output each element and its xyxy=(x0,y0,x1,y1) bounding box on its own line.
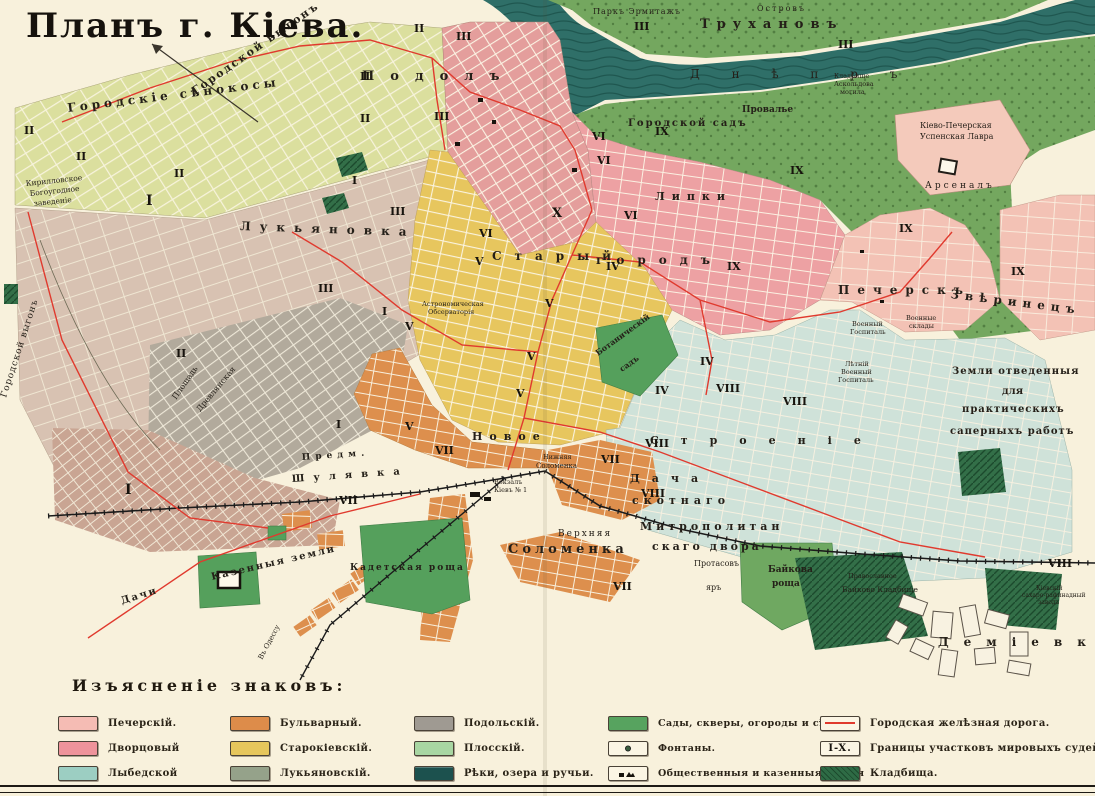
district-numeral: VI xyxy=(623,209,638,222)
legend-swatch-podolsky xyxy=(414,716,454,731)
district-numeral: II xyxy=(360,70,370,83)
district-numeral: VI xyxy=(591,130,606,143)
map-label: Лѣтній xyxy=(845,360,869,368)
map-label: Байково Кладбище xyxy=(842,585,918,594)
district-numeral: I xyxy=(352,174,357,187)
legend-label: Дворцовый xyxy=(108,743,180,754)
red-rail-line-icon xyxy=(825,722,855,724)
map-label: саперныхъ работъ xyxy=(950,426,1074,437)
map-label: Д н ѣ п р ъ xyxy=(690,67,911,81)
legend-label: Границы участковъ мировыхъ судей. xyxy=(870,743,1095,754)
legend-label: Рѣки, озера и ручьи. xyxy=(464,768,594,779)
legend-swatch-buildings-icon xyxy=(608,766,648,781)
map-label: Строеніе xyxy=(650,434,883,447)
district-numeral: IV xyxy=(700,355,714,368)
legend-item: Кладбища. xyxy=(820,764,1095,782)
district-numeral: VII xyxy=(338,494,358,507)
lavra-building xyxy=(939,159,957,175)
page-title: Планъ г. Кіева. xyxy=(26,6,364,46)
map-label: для xyxy=(1002,386,1024,397)
legend-item: Рѣки, озера и ручьи. xyxy=(414,764,594,782)
map-label: Кладбище xyxy=(834,72,869,80)
map-label: Кіевъ № 1 xyxy=(494,486,527,494)
map-label: склады xyxy=(909,322,934,330)
district-numeral: II xyxy=(76,150,86,163)
map-label: роща xyxy=(772,579,800,589)
map-label: Кіевскій xyxy=(1036,585,1063,592)
legend-swatch-rivers xyxy=(414,766,454,781)
district-numeral: VII xyxy=(600,453,620,466)
legend-column-1: Печерскій. Дворцовый Лыбедской xyxy=(58,714,180,789)
map-label: Земли отведенныя xyxy=(952,366,1079,377)
legend-item: Дворцовый xyxy=(58,739,180,757)
map-label: Военный xyxy=(841,368,872,376)
map-label: яръ xyxy=(706,583,721,592)
district-numeral: X xyxy=(552,206,563,221)
district-numeral: VI xyxy=(478,227,493,240)
railway-station-building xyxy=(470,492,480,497)
legend-column-5: Городская желѣзная дорога. I-X. Границы … xyxy=(820,714,1095,789)
map-label: Нижняя xyxy=(543,453,572,461)
district-numeral: I xyxy=(146,193,153,209)
public-buildings-icon xyxy=(617,769,639,778)
district-numeral: V xyxy=(404,420,414,433)
legend-item: Печерскій. xyxy=(58,714,180,732)
legend-swatch-cemetery xyxy=(820,766,860,781)
district-numeral: II xyxy=(24,124,34,137)
map-label: Протасовъ xyxy=(694,559,739,568)
map-label: Митрополитан xyxy=(640,520,783,533)
district-numeral: I xyxy=(125,482,132,498)
map-label: практическихъ xyxy=(962,404,1065,415)
legend-swatch-lybedskoy xyxy=(58,766,98,781)
district-numeral: VIII xyxy=(1047,557,1072,570)
map-label: Арсеналъ xyxy=(925,181,995,191)
district-numeral: II xyxy=(176,347,186,360)
map-label: Вокзалъ xyxy=(494,478,522,486)
district-numeral: III xyxy=(434,110,449,123)
map-label: Городской садъ xyxy=(628,118,748,129)
map-label: Аскольдова xyxy=(834,80,874,88)
legend-swatch-starokievsky xyxy=(230,741,270,756)
legend-label: Лукьяновскій. xyxy=(280,768,371,779)
map-label: скаго двора xyxy=(652,540,762,553)
legend-label: Подольскій. xyxy=(464,718,540,729)
legend-item: Подольскій. xyxy=(414,714,594,732)
legend-swatch-districts: I-X. xyxy=(820,741,860,756)
district-numeral: V xyxy=(526,350,536,363)
district-numeral: VII xyxy=(434,444,454,457)
legend-label: Городская желѣзная дорога. xyxy=(870,718,1050,729)
district-numeral: IX xyxy=(655,125,669,138)
legend-label: Печерскій. xyxy=(108,718,177,729)
district-numeral: VIII xyxy=(782,395,807,408)
district-numeral: IX xyxy=(727,260,741,273)
district-numeral: VII xyxy=(612,580,632,593)
map-label: Новое xyxy=(472,430,547,443)
map-label: Кіево-Печерская xyxy=(920,121,992,130)
map-label: Военные xyxy=(906,314,936,322)
district-numeral: III xyxy=(456,30,471,43)
legend-swatch-fountain-icon xyxy=(608,741,648,756)
legend-swatch-dvortsovy xyxy=(58,741,98,756)
legend-swatch-railline xyxy=(820,716,860,731)
map-label: Успенская Лавра xyxy=(920,132,994,141)
paper-fold-line xyxy=(543,0,547,796)
map-label: Госпиталь xyxy=(838,376,874,384)
legend-label: Бульварный. xyxy=(280,718,362,729)
map-label: могила xyxy=(840,88,865,96)
legend-label: Фонтаны. xyxy=(658,743,715,754)
legend-heading: Изъясненіе знаковъ: xyxy=(72,676,346,695)
legend-column-3: Подольскій. Плосскій. Рѣки, озера и ручь… xyxy=(414,714,594,789)
map-label: Госпиталь xyxy=(850,328,886,336)
district-numeral: IX xyxy=(790,164,804,177)
map-label: Православное xyxy=(848,572,897,580)
map-label: Паркъ Эрмитажъ xyxy=(593,7,681,16)
map-label: Верхняя xyxy=(558,529,612,539)
map-bottom-border xyxy=(0,785,1095,793)
district-numeral: IV xyxy=(606,260,620,273)
legend-item: Плосскій. xyxy=(414,739,594,757)
district-numeral: III xyxy=(390,205,405,218)
legend-swatch-gardens xyxy=(608,716,648,731)
legend-label: Старокіевскій. xyxy=(280,743,372,754)
legend-column-2: Бульварный. Старокіевскій. Лукьяновскій. xyxy=(230,714,372,789)
district-numeral: III xyxy=(318,282,333,295)
map-label: Байкова xyxy=(768,564,813,575)
district-numeral: V xyxy=(474,255,484,268)
district-numeral: I xyxy=(336,418,341,431)
legend-label: Плосскій. xyxy=(464,743,525,754)
district-numeral: VIII xyxy=(644,437,669,450)
map-label: сахаро-рафинадный xyxy=(1022,592,1086,599)
map-label: Подолъ xyxy=(362,69,515,84)
legend-item: Лукьяновскій. xyxy=(230,764,372,782)
map-page: { "title": "Планъ г. Кіева.", "legend": … xyxy=(0,0,1095,796)
legend-swatch-pechersky xyxy=(58,716,98,731)
fountain-icon xyxy=(622,744,634,753)
legend-item: I-X. Границы участковъ мировыхъ судей. xyxy=(820,739,1095,757)
district-numeral: VI xyxy=(596,154,611,167)
district-numeral: I xyxy=(382,305,387,318)
legend-label: Лыбедской xyxy=(108,768,178,779)
map-label: Провалье xyxy=(742,105,793,115)
legend-item: Старокіевскій. xyxy=(230,739,372,757)
map-label: Обсерваторія xyxy=(428,308,474,316)
district-numeral: VIII xyxy=(640,487,665,500)
legend-swatch-lukyanovsky xyxy=(230,766,270,781)
legend-item: Лыбедской xyxy=(58,764,180,782)
map-label: заводъ xyxy=(1038,599,1060,606)
district-numeral: III xyxy=(634,20,649,33)
district-numeral: II xyxy=(414,22,424,35)
map-label: Липки xyxy=(655,190,732,203)
map-label: Дача xyxy=(630,472,710,485)
district-numeral: V xyxy=(404,320,414,333)
district-numeral: VIII xyxy=(715,382,740,395)
map-label: Трухановъ xyxy=(700,17,843,32)
district-numeral: II xyxy=(360,112,370,125)
legend-swatch-plossky xyxy=(414,741,454,756)
map-label: Кадетская роща xyxy=(350,563,465,573)
legend-swatch-bulvarny xyxy=(230,716,270,731)
map-label: Соломенка xyxy=(508,542,628,557)
map-label: Военный xyxy=(852,320,883,328)
district-numeral: IX xyxy=(1011,265,1025,278)
map-label: Астрономическая xyxy=(422,300,484,308)
map-label: Деміевка xyxy=(938,635,1095,649)
legend-item: Бульварный. xyxy=(230,714,372,732)
district-numeral: V xyxy=(515,387,525,400)
legend-label: Кладбища. xyxy=(870,768,938,779)
district-numeral: III xyxy=(838,38,853,51)
district-numeral: IX xyxy=(899,222,913,235)
legend-item: Городская желѣзная дорога. xyxy=(820,714,1095,732)
map-label: Островъ xyxy=(757,4,806,13)
district-numeral: II xyxy=(174,167,184,180)
district-numeral: IV xyxy=(655,384,669,397)
